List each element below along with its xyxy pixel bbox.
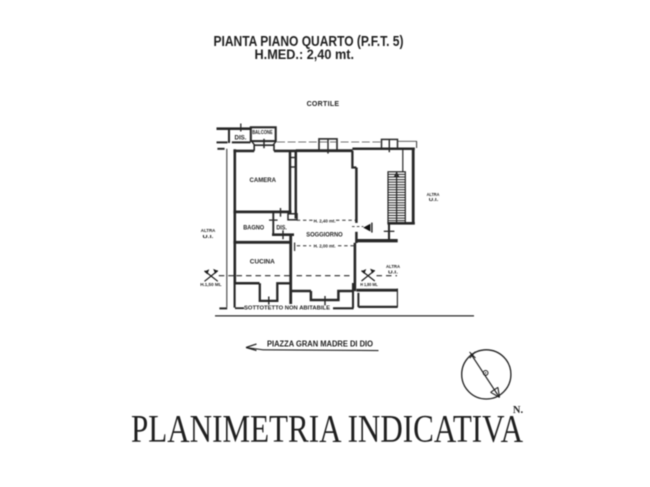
svg-text:BAGNO: BAGNO (243, 225, 264, 232)
svg-text:SOTTOTETTO NON ABITABILE: SOTTOTETTO NON ABITABILE (244, 306, 330, 312)
svg-text:ALTRA: ALTRA (386, 264, 400, 270)
svg-text:U.I.: U.I. (203, 234, 215, 240)
svg-text:H.1,50 ML: H.1,50 ML (200, 282, 221, 288)
svg-text:DIS.: DIS. (235, 136, 247, 142)
svg-text:H 1,80 ML: H 1,80 ML (360, 282, 378, 288)
svg-text:ALTRA: ALTRA (427, 192, 440, 198)
svg-text:PIAZZA GRAN MADRE DI DIO: PIAZZA GRAN MADRE DI DIO (267, 339, 373, 349)
svg-text:H. 2,00 mt.: H. 2,00 mt. (314, 244, 337, 250)
svg-text:U.I.: U.I. (429, 197, 439, 203)
svg-text:H. 2,40 mt.: H. 2,40 mt. (314, 218, 337, 224)
svg-text:H.MED.: 2,40 mt.: H.MED.: 2,40 mt. (255, 47, 355, 62)
svg-text:CAMERA: CAMERA (250, 177, 277, 184)
svg-text:DIS.: DIS. (276, 225, 287, 231)
svg-text:SOGGIORNO: SOGGIORNO (306, 231, 343, 238)
svg-text:PLANIMETRIA INDICATIVA: PLANIMETRIA INDICATIVA (131, 406, 523, 450)
svg-text:CORTILE: CORTILE (307, 101, 340, 108)
svg-text:BALCONE: BALCONE (252, 130, 273, 136)
svg-text:U.I.: U.I. (388, 270, 399, 276)
svg-text:ALTRA: ALTRA (201, 228, 216, 234)
svg-text:CUCINA: CUCINA (250, 258, 275, 265)
